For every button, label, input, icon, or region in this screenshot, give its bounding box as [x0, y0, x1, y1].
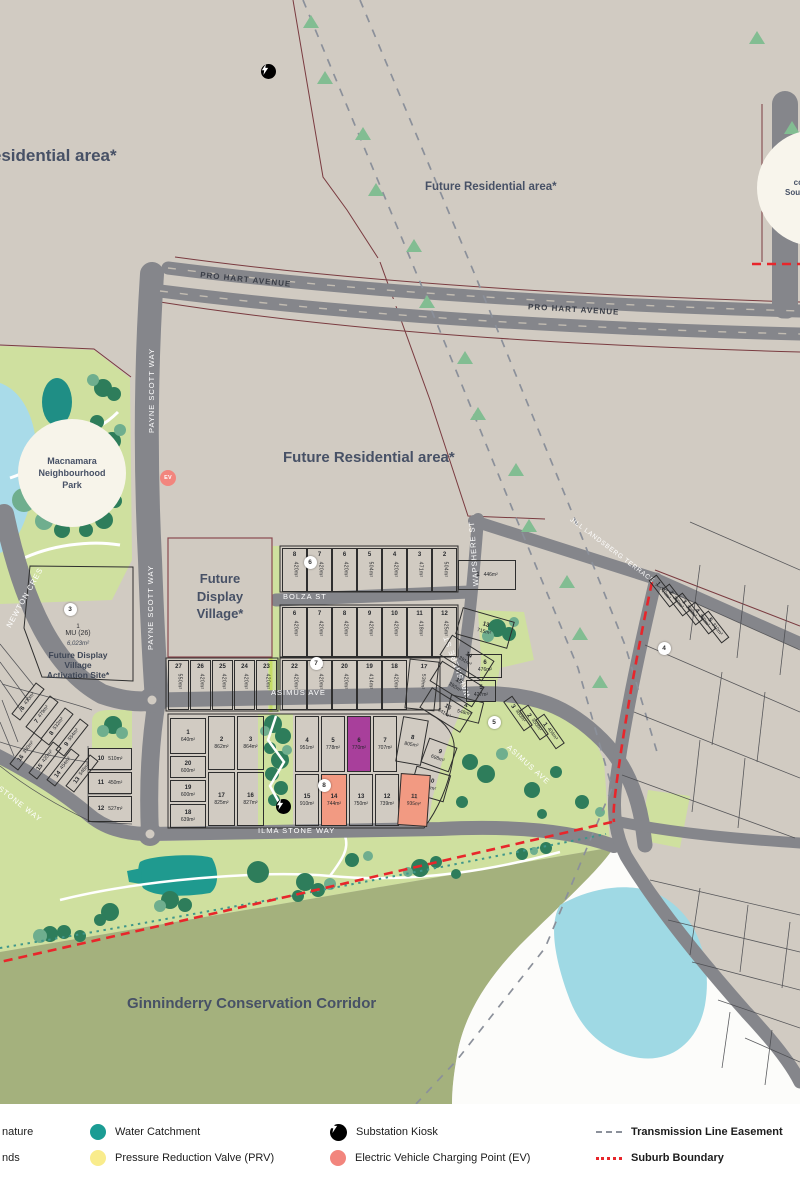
substation-kiosk-icon: [276, 799, 291, 814]
lot-9: 9420m²: [357, 607, 382, 657]
lot-17: 17825m²: [208, 772, 235, 826]
map-note-marker: 5: [488, 716, 501, 729]
lot-7: 7707m²: [373, 716, 397, 772]
tree-icon: [592, 675, 608, 688]
lot-5: 5778m²: [321, 716, 345, 772]
area-label-future-residential-top: Future Residential area*: [425, 181, 557, 193]
lot-4: 4420m²: [382, 548, 407, 592]
map-note-marker: 8: [318, 779, 331, 792]
tree-icon: [508, 463, 524, 476]
lot-20: 20600m²: [170, 756, 206, 778]
lot-6: 6420m²: [332, 548, 357, 592]
lot-15: 15910m²: [295, 774, 319, 826]
tree-icon: [521, 519, 537, 532]
legend-item: Transmission Line Easement: [596, 1122, 783, 1142]
lot-26: 26420m²: [190, 660, 211, 710]
lot-13: 13750m²: [349, 774, 373, 826]
lot-1: 1446m²: [458, 560, 516, 590]
legend-swatch-icon: [90, 1124, 106, 1140]
legend: naturendsWater CatchmentPressure Reducti…: [0, 1104, 800, 1200]
area-label-future-residential-mid: Future Residential area*: [283, 449, 455, 466]
tree-icon: [317, 71, 333, 84]
map-note-marker: 7: [310, 657, 323, 670]
legend-item: Substation Kiosk: [330, 1122, 438, 1142]
tree-icon: [559, 575, 575, 588]
tree-icon: [470, 407, 486, 420]
legend-item: Suburb Boundary: [596, 1148, 724, 1168]
lot-5: 5504m²: [357, 548, 382, 592]
lot-20: 20420m²: [332, 660, 357, 710]
lot-11: 11418m²: [407, 607, 432, 657]
tree-icon: [303, 15, 319, 28]
legend-label: Electric Vehicle Charging Point (EV): [355, 1152, 530, 1164]
area-label-future-residential-topleft: Future Residential area*: [0, 146, 117, 166]
legend-label: Suburb Boundary: [631, 1152, 724, 1164]
map-note-marker: 3: [64, 603, 77, 616]
legend-label: Substation Kiosk: [356, 1126, 438, 1138]
tree-icon: [749, 31, 765, 44]
lot-10: 10510m²: [88, 748, 132, 770]
lot-6: 6476m²: [468, 654, 502, 678]
tree-icon: [572, 627, 588, 640]
legend-label: nds: [2, 1152, 20, 1164]
lot-12: 12739m²: [375, 774, 399, 826]
street-label-payne-scott-1: PAYNE SCOTT WAY: [147, 348, 156, 433]
legend-label: Pressure Reduction Valve (PRV): [115, 1152, 274, 1164]
tree-icon: [368, 183, 384, 196]
legend-swatch-icon: [330, 1150, 346, 1166]
legend-item: nds: [2, 1148, 20, 1168]
dotted-line-icon: [596, 1157, 622, 1160]
substation-kiosk-icon: [261, 64, 276, 79]
tree-icon: [355, 127, 371, 140]
legend-swatch-icon: [90, 1150, 106, 1166]
lot-8: 8420m²: [282, 548, 307, 592]
tree-icon: [457, 351, 473, 364]
legend-label: Water Catchment: [115, 1126, 200, 1138]
lot-2: 2504m²: [432, 548, 457, 592]
area-label-conservation-corridor: Ginninderry Conservation Corridor: [127, 995, 376, 1012]
map-note-marker: 6: [304, 556, 317, 569]
legend-item: nature: [2, 1122, 33, 1142]
street-label-bolza-st: BOLZA ST: [283, 592, 327, 601]
lot-18: 18420m²: [382, 660, 407, 710]
lot-12: 12527m²: [88, 796, 132, 822]
lot-4: 4951m²: [295, 716, 319, 772]
lot-19: 19600m²: [170, 780, 206, 802]
lot-1: 1640m²: [170, 718, 206, 754]
substation-kiosk-icon: [330, 1124, 347, 1141]
dashed-line-icon: [596, 1131, 622, 1133]
estate-map-page: Future Residential area* Future Resident…: [0, 0, 800, 1200]
lot-7: 7420m²: [307, 548, 332, 592]
lot-27: 27550m²: [168, 660, 189, 710]
lot-24: 24420m²: [234, 660, 255, 710]
lot-10: 10420m²: [382, 607, 407, 657]
legend-item: Pressure Reduction Valve (PRV): [90, 1148, 274, 1168]
lot-8: 8420m²: [332, 607, 357, 657]
legend-label: Transmission Line Easement: [631, 1126, 783, 1138]
lot-11: 11935m²: [397, 773, 431, 827]
lot-7: 7420m²: [307, 607, 332, 657]
legend-label: nature: [2, 1126, 33, 1138]
lot-23: 23420m²: [256, 660, 277, 710]
lot-25: 25420m²: [212, 660, 233, 710]
legend-item: Water Catchment: [90, 1122, 200, 1142]
activation-site-label: 1 MU (26) 6,023m² Future Display Village…: [34, 612, 122, 680]
lot-6: 6770m²: [347, 716, 371, 772]
tree-icon: [406, 239, 422, 252]
lot-2: 2862m²: [208, 716, 235, 770]
street-label-ilma-stone-way-1: ILMA STONE WAY: [258, 826, 335, 835]
lot-6: 6420m²: [282, 607, 307, 657]
lot-16: 16827m²: [237, 772, 264, 826]
street-label-payne-scott-2: PAYNE SCOTT WAY: [146, 565, 155, 650]
macnamara-park-label: Macnamara Neighbourhood Park: [18, 419, 126, 527]
lot-18: 18639m²: [170, 804, 206, 828]
area-label-display-village: Future Display Village*: [170, 570, 270, 623]
map-note-marker: 4: [658, 642, 671, 655]
ev-charging-icon: EV: [160, 470, 176, 486]
lot-22: 22420m²: [282, 660, 307, 710]
legend-item: Electric Vehicle Charging Point (EV): [330, 1148, 530, 1168]
lot-3: 3864m²: [237, 716, 264, 770]
lot-11: 11450m²: [88, 772, 132, 794]
lot-19: 19414m²: [357, 660, 382, 710]
lot-3: 3471m²: [407, 548, 432, 592]
